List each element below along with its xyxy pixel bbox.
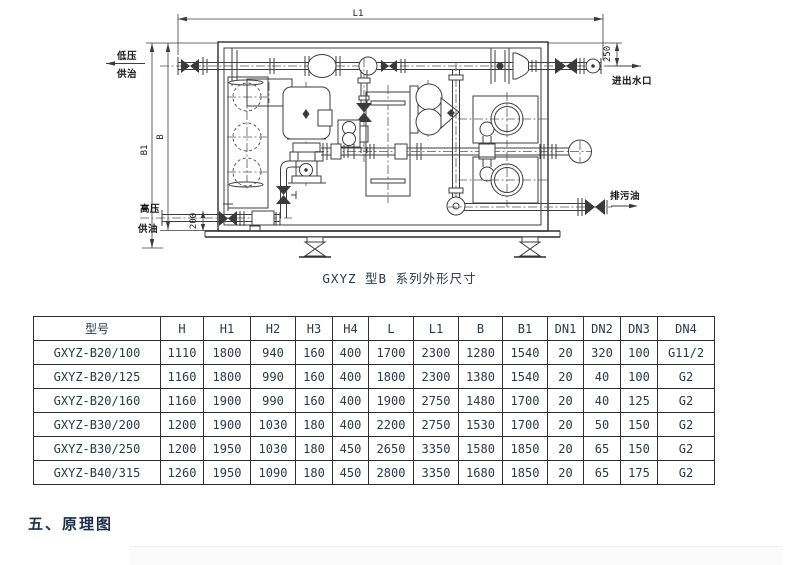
table-cell: 1200	[161, 437, 204, 461]
water-port-text: 进出水口	[612, 75, 652, 87]
low-pressure-label-2: 供治	[116, 68, 137, 80]
table-cell: 990	[251, 365, 296, 389]
next-figure-edge	[130, 546, 782, 565]
drain-port-label: 排污油	[610, 190, 640, 208]
table-cell: 1380	[459, 365, 503, 389]
table-cell: 400	[333, 341, 369, 365]
table-cell: 3350	[414, 461, 459, 485]
table-cell: 65	[584, 461, 621, 485]
table-cell: 1540	[503, 341, 548, 365]
heater-box-1	[458, 92, 548, 147]
table-cell: 2800	[369, 461, 414, 485]
table-cell: 2300	[414, 365, 459, 389]
table-cell: 180	[296, 437, 333, 461]
table-cell: G2	[658, 389, 715, 413]
table-cell: 180	[296, 461, 333, 485]
table-cell: 400	[333, 389, 369, 413]
column-header: B1	[503, 317, 548, 341]
table-cell: G2	[658, 437, 715, 461]
table-cell: 1700	[503, 413, 548, 437]
figure-caption: GXYZ 型B 系列外形尺寸	[0, 268, 799, 287]
dim-b1: B1	[140, 43, 163, 248]
column-header: DN4	[658, 317, 715, 341]
low-pressure-port-label: 低压 供治	[106, 50, 145, 80]
table-cell: 20	[548, 365, 584, 389]
column-header: H1	[204, 317, 251, 341]
table-cell: 160	[296, 389, 333, 413]
machine-foot	[299, 237, 331, 257]
table-cell: 1030	[251, 413, 296, 437]
table-cell: 2650	[369, 437, 414, 461]
table-cell: 1090	[251, 461, 296, 485]
table-cell: GXYZ-B20/125	[34, 365, 161, 389]
section-title: 五、原理图	[28, 513, 113, 534]
column-header: L	[369, 317, 414, 341]
table-cell: GXYZ-B20/160	[34, 389, 161, 413]
column-header: 型号	[34, 317, 161, 341]
dimensions-table: 型号HH1H2H3H4LL1BB1DN1DN2DN3DN4 GXYZ-B20/1…	[33, 316, 715, 485]
drain-port-text: 排污油	[610, 190, 640, 202]
column-header: B	[459, 317, 503, 341]
table-cell: 125	[621, 389, 658, 413]
column-header: DN1	[548, 317, 584, 341]
motor-pump	[283, 82, 332, 186]
dim-label-l1: L1	[353, 9, 364, 19]
table-cell: 1900	[369, 389, 414, 413]
table-cell: 175	[621, 461, 658, 485]
column-header: DN3	[621, 317, 658, 341]
table-cell: GXYZ-B30/250	[34, 437, 161, 461]
table-cell: 1160	[161, 365, 204, 389]
machine-foot	[514, 237, 546, 257]
high-pressure-pipe	[140, 161, 300, 226]
table-cell: 20	[548, 341, 584, 365]
table-cell: 180	[296, 413, 333, 437]
table-cell: 1260	[161, 461, 204, 485]
table-cell: 40	[584, 365, 621, 389]
table-cell: 2750	[414, 389, 459, 413]
table-cell: 400	[333, 413, 369, 437]
table-cell: 1950	[204, 437, 251, 461]
table-cell: 1530	[459, 413, 503, 437]
table-cell: 320	[584, 341, 621, 365]
table-row: GXYZ-B30/2501200195010301804502650335015…	[34, 437, 715, 461]
table-cell: 1680	[459, 461, 503, 485]
table-cell: 100	[621, 341, 658, 365]
table-cell: 1850	[503, 437, 548, 461]
table-cell: 1160	[161, 389, 204, 413]
column-header: DN2	[584, 317, 621, 341]
dim-label-250: 250	[603, 46, 613, 62]
table-cell: 150	[621, 437, 658, 461]
column-header: H3	[296, 317, 333, 341]
dim-label-b: B	[156, 134, 166, 139]
high-pressure-label-2: 供油	[137, 223, 158, 235]
column-header: H	[161, 317, 204, 341]
column-header: L1	[414, 317, 459, 341]
table-cell: 1030	[251, 437, 296, 461]
table-cell: 20	[548, 413, 584, 437]
gear-pump	[338, 58, 372, 162]
table-cell: 65	[584, 437, 621, 461]
table-cell: 1800	[204, 365, 251, 389]
table-cell: 1900	[204, 413, 251, 437]
table-cell: 160	[296, 341, 333, 365]
column-header: H4	[333, 317, 369, 341]
twin-filter	[410, 80, 459, 140]
table-cell: 100	[621, 365, 658, 389]
table-cell: G2	[658, 413, 715, 437]
table-cell: 1700	[369, 341, 414, 365]
table-cell: 20	[548, 389, 584, 413]
table-cell: 1280	[459, 341, 503, 365]
table-cell: 2750	[414, 413, 459, 437]
table-cell: 20	[548, 437, 584, 461]
table-cell: G2	[658, 365, 715, 389]
table-row: GXYZ-B20/1251160180099016040018002300138…	[34, 365, 715, 389]
table-cell: 1480	[459, 389, 503, 413]
table-cell: 1700	[503, 389, 548, 413]
table-cell: 450	[333, 461, 369, 485]
table-row: GXYZ-B30/2001200190010301804002200275015…	[34, 413, 715, 437]
table-cell: 940	[251, 341, 296, 365]
table-row: GXYZ-B20/1001110180094016040017002300128…	[34, 341, 715, 365]
table-cell: 450	[333, 437, 369, 461]
heater-box-2	[458, 152, 548, 207]
table-cell: 400	[333, 365, 369, 389]
table-cell: 1580	[459, 437, 503, 461]
table-cell: 40	[584, 389, 621, 413]
table-cell: 1850	[503, 461, 548, 485]
table-cell: GXYZ-B40/315	[34, 461, 161, 485]
column-header: H2	[251, 317, 296, 341]
table-cell: 1540	[503, 365, 548, 389]
water-port-label: 进出水口	[612, 64, 652, 87]
table-row: GXYZ-B20/1601160190099016040019002750148…	[34, 389, 715, 413]
high-pressure-port-label: 高压 供油	[137, 203, 160, 235]
outline-drawing: L1	[0, 0, 799, 310]
table-cell: 1900	[204, 389, 251, 413]
table-header-row: 型号HH1H2H3H4LL1BB1DN1DN2DN3DN4	[34, 317, 715, 341]
table-cell: 160	[296, 365, 333, 389]
table-cell: 50	[584, 413, 621, 437]
dim-200: 200	[189, 211, 205, 231]
high-pressure-label: 高压	[140, 203, 160, 215]
table-cell: 2200	[369, 413, 414, 437]
table-cell: 1200	[161, 413, 204, 437]
table-cell: 20	[548, 461, 584, 485]
table-row: GXYZ-B40/3151260195010901804502800335016…	[34, 461, 715, 485]
table-cell: G11/2	[658, 341, 715, 365]
table-cell: 1800	[369, 365, 414, 389]
table-cell: G2	[658, 461, 715, 485]
dim-l1: L1	[178, 9, 603, 60]
table-cell: 2300	[414, 341, 459, 365]
table-cell: 3350	[414, 437, 459, 461]
table-cell: 150	[621, 413, 658, 437]
table-cell: 990	[251, 389, 296, 413]
dim-label-b1: B1	[140, 145, 150, 156]
table-cell: 1800	[204, 341, 251, 365]
table-cell: GXYZ-B30/200	[34, 413, 161, 437]
dim-label-200: 200	[189, 213, 199, 229]
low-pressure-label: 低压	[116, 50, 137, 62]
table-cell: 1110	[161, 341, 204, 365]
pressure-gauge	[569, 140, 592, 163]
table-cell: 1950	[204, 461, 251, 485]
drain-riser	[447, 62, 465, 215]
table-cell: GXYZ-B20/100	[34, 341, 161, 365]
